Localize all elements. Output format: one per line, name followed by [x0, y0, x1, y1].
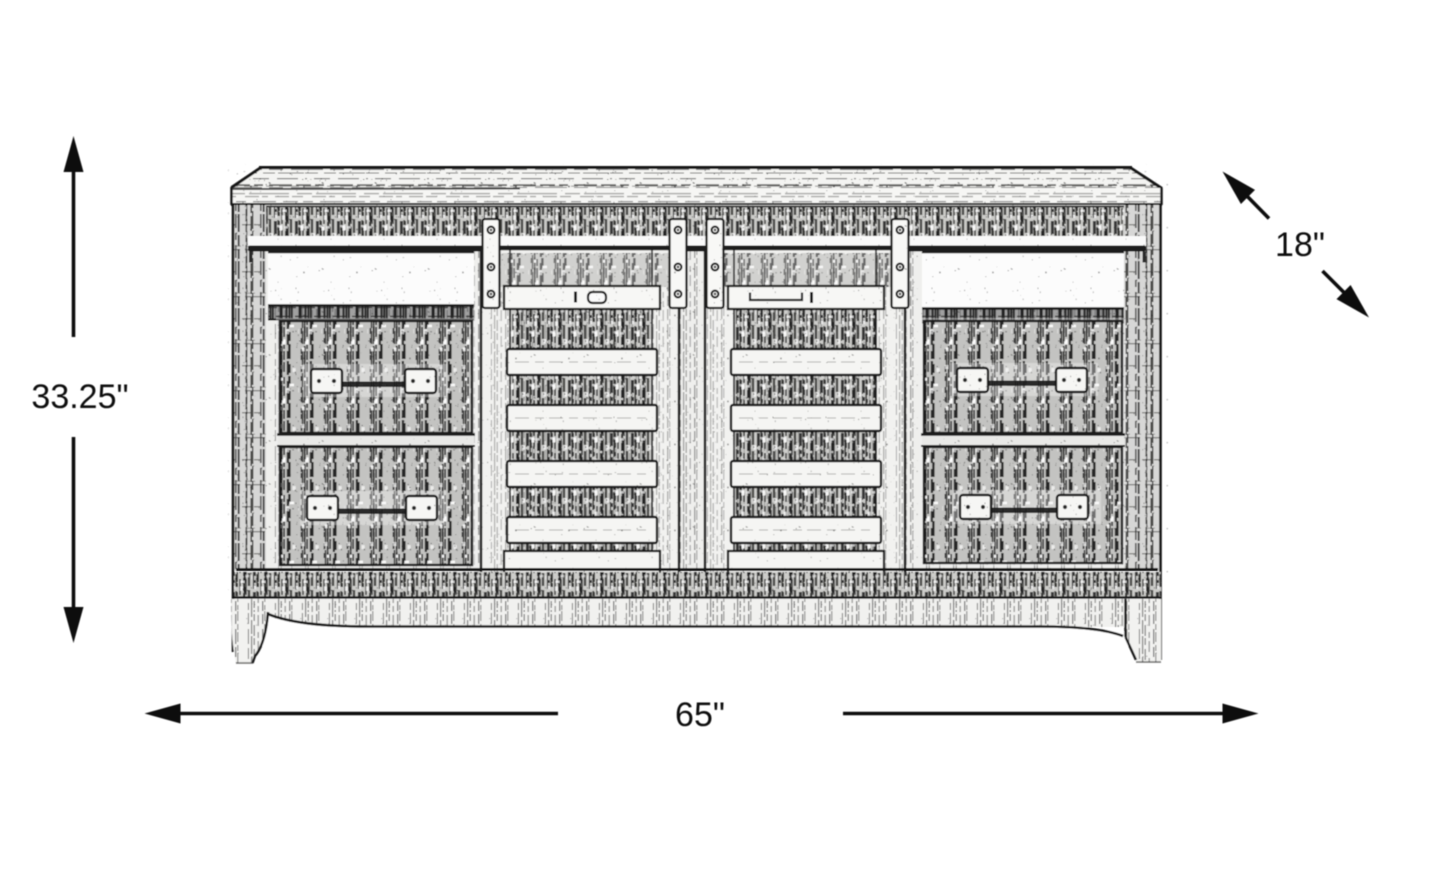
svg-text:33.25": 33.25"	[31, 378, 128, 416]
svg-text:65": 65"	[675, 696, 725, 734]
svg-text:18": 18"	[1275, 226, 1325, 264]
